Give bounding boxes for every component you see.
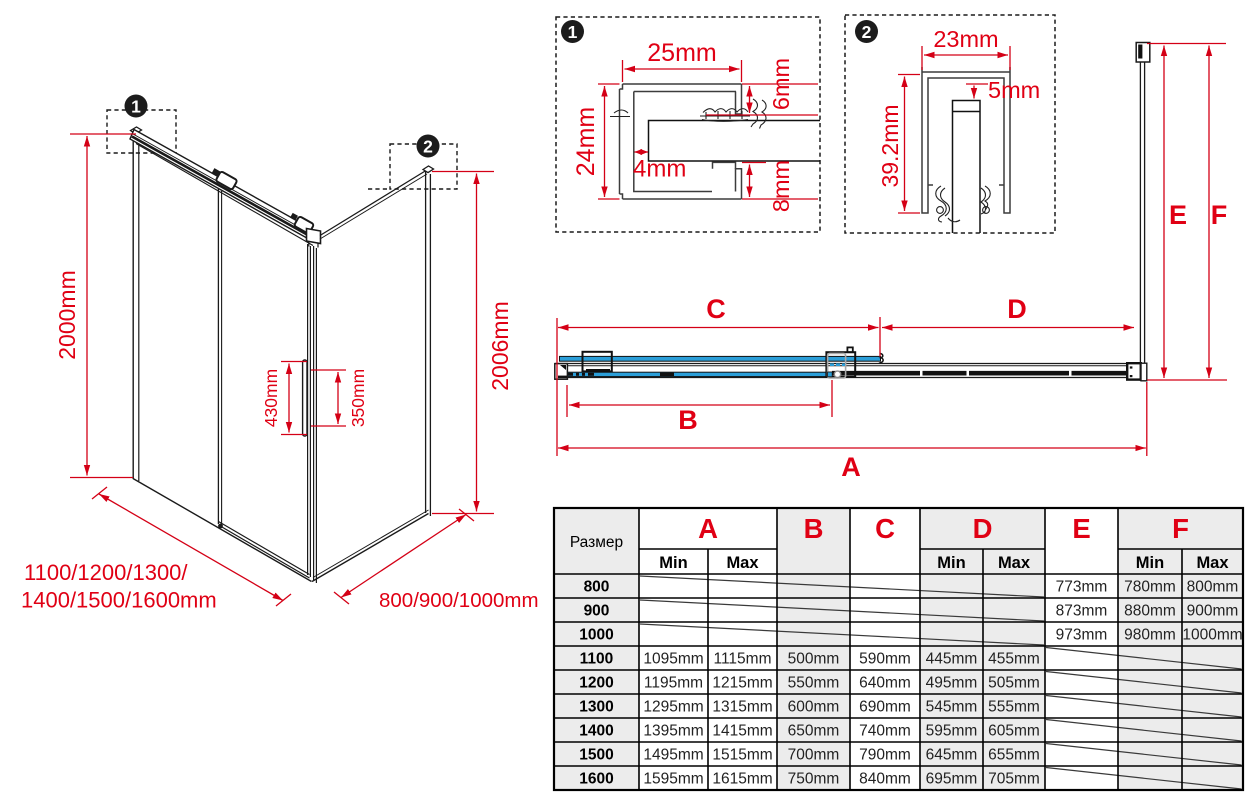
svg-text:6mm: 6mm: [768, 58, 794, 110]
svg-text:Max: Max: [726, 554, 759, 572]
svg-text:Max: Max: [998, 554, 1031, 572]
svg-text:4mm: 4mm: [633, 156, 686, 183]
svg-text:1400/1500/1600mm: 1400/1500/1600mm: [21, 588, 217, 613]
svg-text:600mm: 600mm: [788, 699, 840, 716]
svg-text:1400: 1400: [579, 723, 613, 740]
svg-text:C: C: [706, 294, 726, 324]
svg-text:595mm: 595mm: [926, 723, 978, 740]
svg-text:1000: 1000: [579, 627, 613, 644]
svg-text:790mm: 790mm: [859, 747, 911, 764]
svg-text:25mm: 25mm: [647, 39, 716, 67]
svg-text:1000mm: 1000mm: [1182, 627, 1242, 644]
svg-text:780mm: 780mm: [1124, 579, 1176, 596]
svg-text:1115mm: 1115mm: [713, 651, 771, 668]
svg-text:980mm: 980mm: [1124, 627, 1176, 644]
svg-text:640mm: 640mm: [859, 675, 911, 692]
svg-text:690mm: 690mm: [859, 699, 911, 716]
svg-text:24mm: 24mm: [572, 107, 600, 176]
svg-text:1100/1200/1300/: 1100/1200/1300/: [24, 560, 188, 585]
svg-text:350mm: 350mm: [348, 369, 368, 427]
svg-text:800mm: 800mm: [1187, 579, 1239, 596]
svg-text:2: 2: [862, 22, 872, 42]
svg-text:455mm: 455mm: [988, 651, 1040, 668]
svg-text:1200: 1200: [579, 675, 613, 692]
svg-text:2006mm: 2006mm: [487, 301, 513, 390]
svg-text:8mm: 8mm: [768, 160, 794, 212]
svg-text:973mm: 973mm: [1056, 627, 1108, 644]
svg-text:445mm: 445mm: [926, 651, 978, 668]
svg-text:590mm: 590mm: [859, 651, 911, 668]
svg-text:1: 1: [568, 22, 578, 42]
svg-text:740mm: 740mm: [859, 723, 911, 740]
svg-text:1: 1: [131, 97, 141, 117]
svg-text:E: E: [1072, 513, 1090, 544]
svg-text:1515mm: 1515mm: [712, 747, 772, 764]
svg-text:430mm: 430mm: [261, 369, 281, 427]
svg-text:1100: 1100: [580, 651, 614, 668]
svg-text:5mm: 5mm: [988, 77, 1040, 103]
svg-text:750mm: 750mm: [788, 771, 840, 788]
svg-text:2000mm: 2000mm: [54, 270, 80, 359]
svg-text:1295mm: 1295mm: [643, 699, 703, 716]
svg-text:605mm: 605mm: [988, 723, 1040, 740]
svg-text:500mm: 500mm: [788, 651, 840, 668]
svg-text:773mm: 773mm: [1056, 579, 1108, 596]
svg-text:B: B: [804, 513, 824, 544]
svg-text:1215mm: 1215mm: [712, 675, 772, 692]
svg-text:495mm: 495mm: [926, 675, 978, 692]
svg-text:840mm: 840mm: [859, 771, 911, 788]
svg-text:1315mm: 1315mm: [712, 699, 772, 716]
svg-text:655mm: 655mm: [988, 747, 1040, 764]
svg-text:C: C: [875, 513, 895, 544]
svg-text:550mm: 550mm: [788, 675, 840, 692]
svg-text:23mm: 23mm: [933, 26, 998, 52]
svg-text:700mm: 700mm: [788, 747, 840, 764]
svg-text:1595mm: 1595mm: [643, 771, 703, 788]
svg-text:Размер: Размер: [570, 534, 623, 551]
svg-text:Min: Min: [659, 554, 687, 572]
svg-text:705mm: 705mm: [988, 771, 1040, 788]
svg-text:A: A: [841, 452, 861, 482]
svg-text:505mm: 505mm: [988, 675, 1040, 692]
svg-text:1300: 1300: [579, 699, 613, 716]
svg-text:1495mm: 1495mm: [643, 747, 703, 764]
svg-text:1500: 1500: [579, 747, 613, 764]
svg-text:645mm: 645mm: [926, 747, 978, 764]
svg-text:Max: Max: [1196, 554, 1229, 572]
svg-text:1615mm: 1615mm: [712, 771, 772, 788]
svg-text:E: E: [1169, 200, 1187, 230]
svg-text:D: D: [973, 513, 993, 544]
svg-text:1415mm: 1415mm: [712, 723, 772, 740]
svg-text:B: B: [678, 405, 698, 435]
svg-text:650mm: 650mm: [788, 723, 840, 740]
svg-text:880mm: 880mm: [1124, 603, 1176, 620]
svg-text:2: 2: [423, 137, 433, 157]
svg-text:800: 800: [584, 579, 610, 596]
svg-text:545mm: 545mm: [926, 699, 978, 716]
svg-text:D: D: [1007, 294, 1027, 324]
svg-text:Min: Min: [937, 554, 965, 572]
svg-text:695mm: 695mm: [926, 771, 978, 788]
svg-text:1395mm: 1395mm: [643, 723, 703, 740]
svg-text:800/900/1000mm: 800/900/1000mm: [379, 589, 539, 612]
svg-text:F: F: [1172, 513, 1189, 544]
svg-text:1095mm: 1095mm: [643, 651, 703, 668]
svg-text:39.2mm: 39.2mm: [877, 104, 903, 187]
svg-text:1600: 1600: [579, 771, 613, 788]
svg-text:900mm: 900mm: [1187, 603, 1239, 620]
svg-text:Min: Min: [1136, 554, 1164, 572]
svg-text:555mm: 555mm: [988, 699, 1040, 716]
svg-text:A: A: [698, 513, 718, 544]
svg-text:F: F: [1211, 200, 1228, 230]
svg-text:900: 900: [584, 603, 610, 620]
svg-text:1195mm: 1195mm: [644, 675, 703, 692]
svg-text:873mm: 873mm: [1056, 603, 1108, 620]
